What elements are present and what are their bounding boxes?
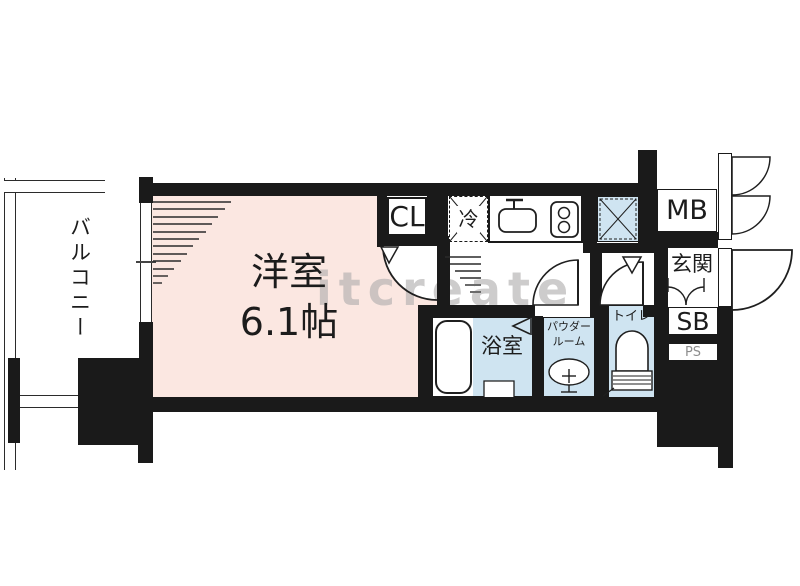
powder-room-label: ルーム bbox=[543, 334, 595, 348]
wall-entrance-top bbox=[653, 232, 718, 248]
mb-doors bbox=[732, 157, 770, 234]
shoe-box-doors bbox=[668, 278, 704, 305]
wall-balcony-left-block bbox=[8, 358, 20, 443]
wall-left-upper bbox=[139, 177, 153, 203]
entrance-door bbox=[732, 250, 792, 310]
entrance-label: 玄関 bbox=[666, 250, 718, 278]
wall-bath-left bbox=[418, 305, 432, 397]
shoe-box-label: SB bbox=[668, 308, 718, 334]
pipe-space-label: PS bbox=[668, 344, 718, 360]
wall-left-lower bbox=[139, 322, 153, 360]
meter-box-label: MB bbox=[657, 191, 717, 230]
bathroom-label: 浴室 bbox=[471, 334, 533, 358]
wall-powder-toilet bbox=[595, 305, 608, 397]
wall-kitchen-washer bbox=[583, 183, 597, 243]
wall-washer-bottom bbox=[583, 243, 657, 253]
toilet-label: トイレ bbox=[608, 308, 655, 324]
washer-space-box bbox=[597, 196, 639, 242]
watermark: itcreate bbox=[316, 262, 575, 316]
wall-sb-ps bbox=[668, 335, 718, 343]
main-room-floor bbox=[377, 307, 418, 397]
wall-right-lower bbox=[718, 307, 733, 361]
balcony-rail-bottom bbox=[20, 395, 80, 408]
wall-se-foot bbox=[718, 447, 733, 468]
wall-bottom bbox=[141, 397, 657, 412]
balcony-rail-top bbox=[4, 180, 105, 193]
toilet-door bbox=[600, 257, 643, 305]
refrigerator-label: 冷 bbox=[449, 197, 488, 241]
balcony-label: バルコニー bbox=[64, 198, 94, 358]
window-center-tick bbox=[136, 261, 156, 263]
closet-label: CL bbox=[387, 199, 427, 234]
mb-door-frame bbox=[718, 153, 732, 240]
entrance-door-frame bbox=[718, 248, 732, 307]
wall-balcony-foot bbox=[138, 445, 153, 463]
wall-closet-right bbox=[427, 183, 448, 243]
floorplan: バルコニー 洋室 6.1帖 CL 冷 MB 玄関 SB PS 浴室 パウダー ル… bbox=[0, 0, 800, 586]
kitchen-counter bbox=[488, 194, 583, 243]
powder-room-label: パウダー bbox=[543, 319, 595, 333]
wall-bath-powder bbox=[533, 316, 543, 397]
wall-se-block bbox=[657, 361, 733, 447]
